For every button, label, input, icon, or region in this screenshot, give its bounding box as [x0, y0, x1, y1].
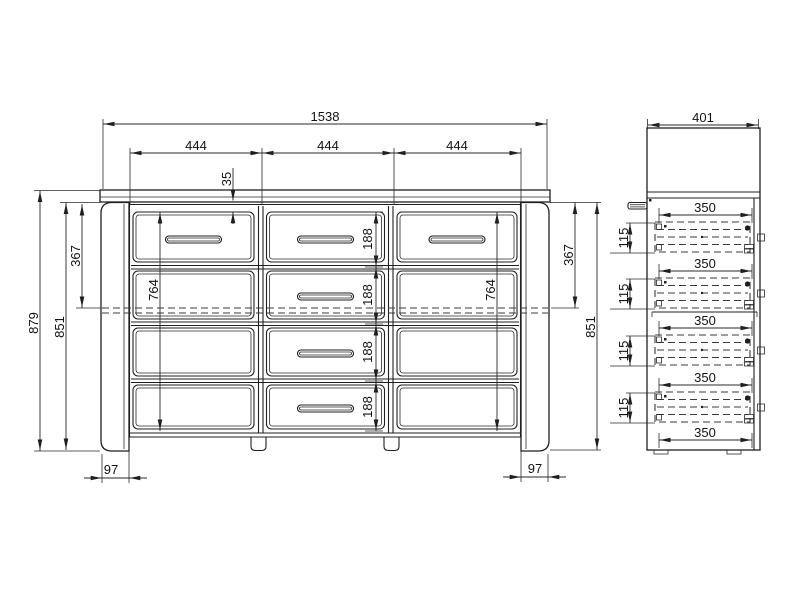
dim-label-overall-width: 1538	[311, 109, 340, 124]
dim-label-side-drawer-height-4: 115	[616, 398, 631, 419]
drawer-front	[397, 212, 517, 262]
left-side-panel	[101, 203, 129, 452]
dim-label-col-width-1: 444	[185, 138, 207, 153]
foot	[251, 437, 266, 451]
dim-label-left-panel-height: 851	[52, 316, 67, 338]
drawer-front	[133, 328, 254, 376]
dim-label-drawer-height-2: 188	[360, 284, 375, 306]
drawer-height-dims	[610, 223, 655, 423]
drawer-handle	[298, 236, 354, 243]
drawer-depth-dims	[659, 208, 752, 448]
drawer-handle	[298, 293, 354, 300]
dim-label-right-top-offset: 367	[561, 244, 576, 266]
dim-label-side-drawer-height-2: 115	[616, 284, 631, 305]
drawer-front	[397, 271, 517, 319]
dim-label-right-foot-width: 97	[528, 461, 542, 476]
foot	[384, 437, 399, 451]
right-side-panel	[521, 203, 549, 452]
dim-label-col-width-3: 444	[446, 138, 468, 153]
drawer-handle	[298, 405, 354, 412]
side-dimensions	[610, 119, 759, 448]
dim-label-depth-total: 401	[692, 110, 714, 125]
drawer-handle	[429, 236, 485, 243]
drawer-front	[133, 385, 254, 429]
dim-label-drawer-height-3: 188	[360, 341, 375, 363]
dim-label-drawer-depth-1: 350	[694, 200, 716, 215]
dim-label-side-drawer-height-3: 115	[616, 341, 631, 362]
dim-label-drawer-depth-5: 350	[694, 425, 716, 440]
drawer-handle-profile	[628, 203, 647, 210]
dim-label-drawer-depth-4: 350	[694, 370, 716, 385]
side-panel-outline	[647, 128, 760, 450]
front-dimensions	[34, 119, 601, 483]
drawer-handle	[166, 236, 222, 243]
front-view	[100, 190, 550, 451]
drawer-front	[397, 328, 517, 376]
side-view	[628, 128, 765, 454]
dim-label-side-drawer-height-1: 115	[616, 228, 631, 249]
dim-label-left-foot-width: 97	[104, 462, 118, 477]
drawer-front	[397, 385, 517, 429]
dim-label-drawer-height-4: 188	[360, 396, 375, 418]
dim-label-left-column-height: 764	[146, 279, 161, 301]
drawer-handle	[298, 350, 354, 357]
top-panel	[100, 190, 550, 202]
dim-label-drawer-height-1: 188	[360, 228, 375, 250]
dim-label-right-panel-height: 851	[583, 316, 598, 338]
technical-drawing-page: 1538 444 444 444 35 879 851 367 764 188 …	[0, 0, 800, 600]
dim-label-overall-height: 879	[26, 312, 41, 334]
dim-label-top-gap: 35	[219, 172, 234, 186]
dim-label-right-column-height: 764	[483, 279, 498, 301]
drawer-front	[133, 212, 254, 262]
dresser-drawing: 1538 444 444 444 35 879 851 367 764 188 …	[0, 0, 800, 600]
dim-label-left-top-offset: 367	[68, 245, 83, 267]
drawer-fronts	[133, 212, 517, 429]
dim-label-drawer-depth-3: 350	[694, 313, 716, 328]
dim-label-drawer-depth-2: 350	[694, 256, 716, 271]
dim-label-col-width-2: 444	[317, 138, 339, 153]
